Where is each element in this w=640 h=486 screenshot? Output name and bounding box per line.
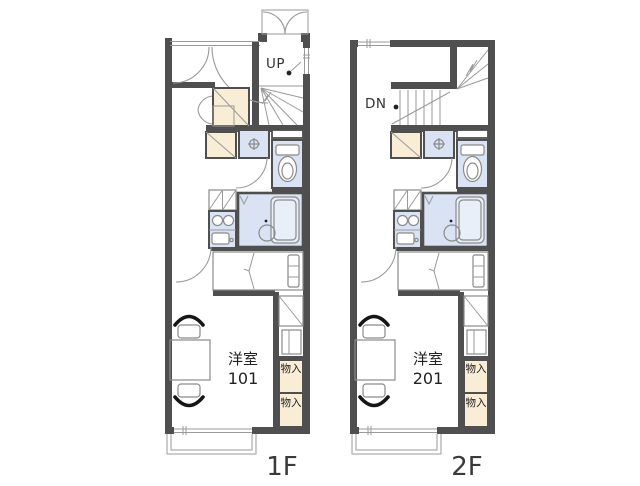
stairs-dn-label: DN xyxy=(365,96,387,112)
room-door-arc-1f xyxy=(176,247,211,282)
chair-top-2f xyxy=(360,317,388,339)
storage-label: 物入 xyxy=(464,363,488,377)
washroom-door-arc-2f xyxy=(421,158,452,188)
window-1f xyxy=(174,426,252,435)
closet-diagonal-1f xyxy=(279,296,303,326)
refrigerator-space-2f xyxy=(394,190,421,210)
bed-1f xyxy=(213,252,303,290)
hall-door-arc-1f xyxy=(173,47,209,83)
bed-2f xyxy=(398,252,488,290)
stove-burner-icon xyxy=(213,216,223,226)
shoe-closet-1f xyxy=(213,88,249,126)
refrigerator-space-1f xyxy=(209,190,236,210)
washing-machine-2f xyxy=(424,130,454,158)
room-label-101: 洋室101 xyxy=(217,350,269,389)
bathtub-icon xyxy=(456,197,484,243)
storage-label: 物入 xyxy=(464,397,488,411)
chair-bottom-1f xyxy=(175,384,203,406)
table-1f xyxy=(170,340,210,380)
sink-icon xyxy=(397,233,414,244)
room-number: 101 xyxy=(228,369,259,388)
cabinet-1f xyxy=(282,330,301,354)
bathroom-2f xyxy=(423,193,488,247)
storage-label: 物入 xyxy=(279,363,303,377)
bathroom-1f xyxy=(238,193,303,247)
closet-2f xyxy=(391,132,421,158)
floorplan-stage: UP DN 洋室101 洋室201 物入 物入 物入 物入 1F 2F xyxy=(0,0,640,486)
table-2f xyxy=(355,340,395,380)
room-number: 201 xyxy=(413,369,444,388)
washing-machine-1f xyxy=(239,130,269,158)
sink-icon xyxy=(212,233,229,244)
room-name: 洋室 xyxy=(228,350,258,368)
toilet-shelf-1f xyxy=(272,130,303,138)
room-name: 洋室 xyxy=(413,350,443,368)
closet-diagonal-2f xyxy=(464,296,488,326)
window-top-2f xyxy=(358,39,390,48)
chair-top-1f xyxy=(175,317,203,339)
bathtub-icon xyxy=(271,197,299,243)
stove-burner-icon xyxy=(398,216,408,226)
kitchen-unit-1f xyxy=(209,211,236,248)
room-door-arc-2f xyxy=(361,247,396,282)
kitchen-unit-2f xyxy=(394,211,421,248)
dn-marker-dot xyxy=(394,105,399,110)
storage-label: 物入 xyxy=(279,397,303,411)
stove-burner-icon xyxy=(224,216,234,226)
room-label-201: 洋室201 xyxy=(402,350,454,389)
stair-window-1f xyxy=(303,48,310,74)
window-2f xyxy=(359,426,437,435)
bifold-door-1f xyxy=(198,96,213,124)
stairs-up-label: UP xyxy=(266,56,285,72)
washroom-door-arc-1f xyxy=(236,158,267,188)
toilet-2f xyxy=(457,140,488,188)
floor-label-2f: 2F xyxy=(443,452,491,482)
balcony-2f xyxy=(352,434,441,454)
toilet-1f xyxy=(272,140,303,188)
balcony-1f xyxy=(167,434,256,454)
cabinet-2f xyxy=(467,330,486,354)
floor-label-1f: 1F xyxy=(258,452,306,482)
toilet-shelf-2f xyxy=(457,130,488,138)
floorplan-graphic xyxy=(0,0,640,486)
stove-burner-icon xyxy=(409,216,419,226)
up-marker-dot xyxy=(287,71,292,76)
closet-1f xyxy=(206,132,236,158)
chair-bottom-2f xyxy=(360,384,388,406)
